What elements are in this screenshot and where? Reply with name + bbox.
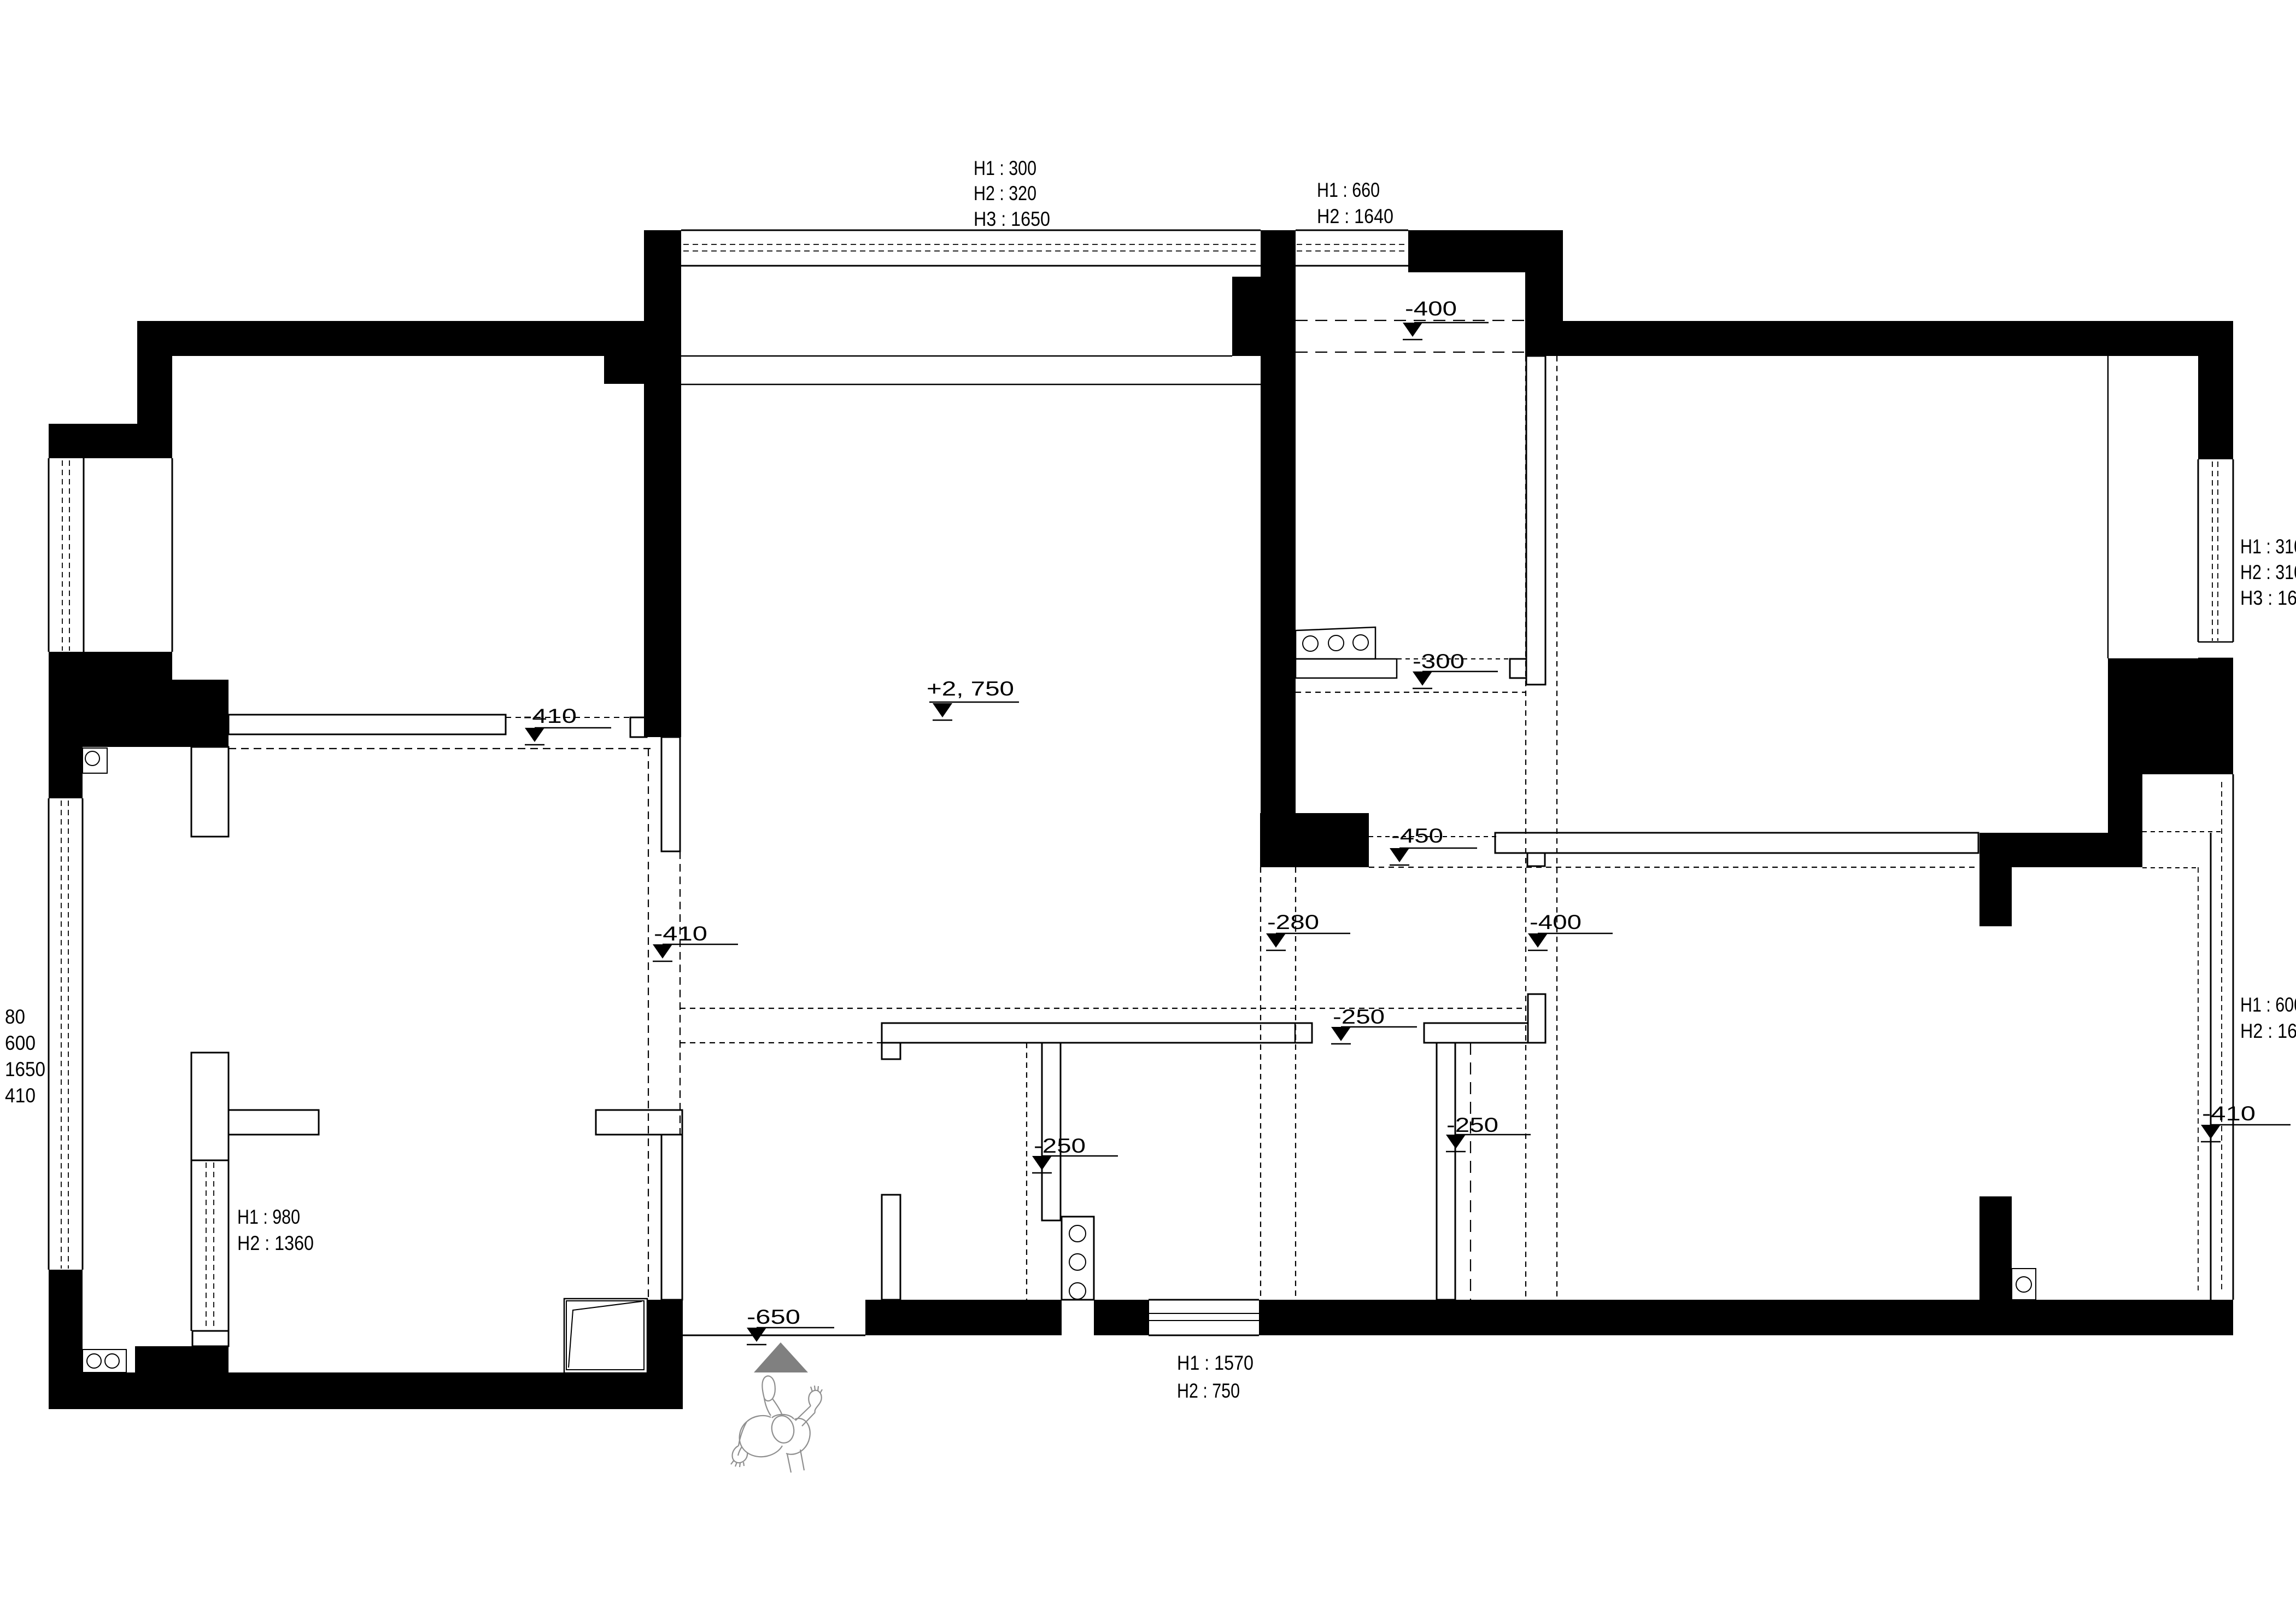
svg-text:-250: -250 [1333, 1006, 1385, 1028]
svg-text:-300: -300 [1413, 650, 1465, 673]
svg-text:H1 : 1570: H1 : 1570 [1177, 1352, 1254, 1374]
svg-text:-410: -410 [523, 705, 577, 727]
svg-text:H1 : 600: H1 : 600 [2240, 994, 2296, 1016]
svg-text:H3 : 1650: H3 : 1650 [974, 208, 1050, 230]
svg-text:H2 : 1360: H2 : 1360 [237, 1232, 314, 1254]
svg-text:-410: -410 [654, 922, 707, 945]
svg-text:80: 80 [5, 1006, 25, 1028]
svg-text:-250: -250 [1446, 1114, 1498, 1136]
svg-text:H1 : 300: H1 : 300 [974, 157, 1036, 179]
svg-text:-280: -280 [1267, 911, 1319, 933]
svg-text:1650: 1650 [5, 1058, 45, 1080]
svg-text:-250: -250 [1034, 1135, 1086, 1157]
svg-text:H1 : 980: H1 : 980 [237, 1206, 300, 1228]
svg-text:-650: -650 [747, 1306, 800, 1328]
svg-text:H1 : 660: H1 : 660 [1317, 179, 1380, 201]
svg-text:H2 : 1670: H2 : 1670 [2240, 1020, 2296, 1042]
svg-text:-410: -410 [2202, 1102, 2256, 1125]
svg-text:-400: -400 [1405, 297, 1457, 320]
svg-text:H2 : 750: H2 : 750 [1177, 1380, 1240, 1402]
svg-text:H3 : 1640: H3 : 1640 [2240, 587, 2296, 609]
svg-text:H2 : 310: H2 : 310 [2240, 561, 2296, 583]
svg-text:600: 600 [5, 1032, 36, 1054]
svg-text:-400: -400 [1530, 911, 1582, 933]
svg-text:+2, 750: +2, 750 [927, 677, 1014, 700]
svg-text:-450: -450 [1391, 825, 1443, 847]
svg-text:H1 : 310: H1 : 310 [2240, 535, 2296, 558]
svg-text:H2 : 320: H2 : 320 [974, 182, 1036, 205]
svg-text:H2 : 1640: H2 : 1640 [1317, 205, 1393, 227]
svg-text:410: 410 [5, 1084, 36, 1107]
